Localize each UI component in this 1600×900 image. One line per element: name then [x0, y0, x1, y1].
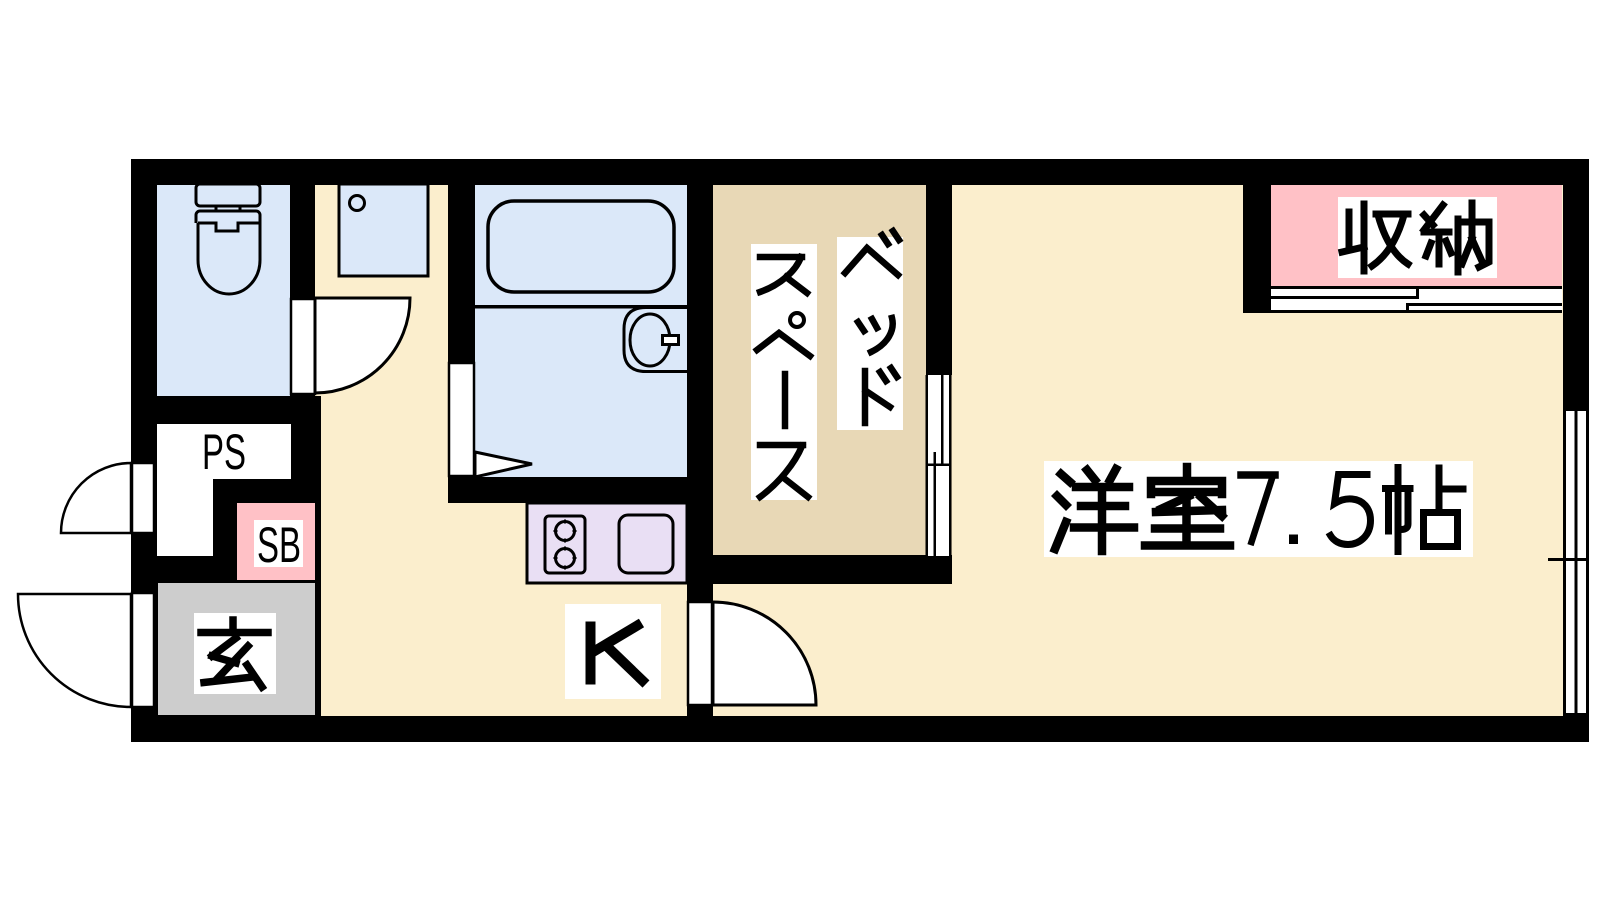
- svg-text:SB: SB: [257, 516, 301, 573]
- svg-text:PS: PS: [202, 423, 246, 480]
